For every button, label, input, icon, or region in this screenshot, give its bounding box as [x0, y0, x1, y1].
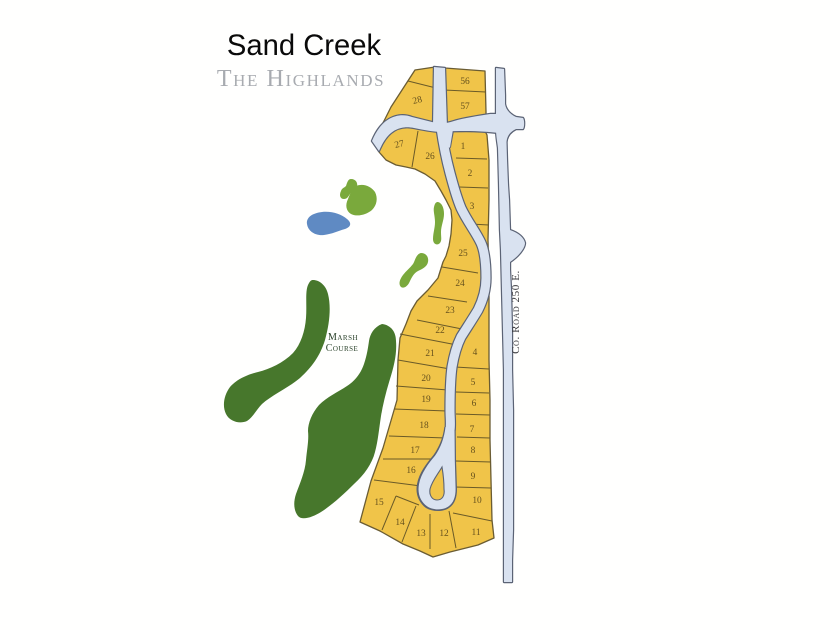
svg-text:23: 23	[445, 306, 455, 316]
svg-text:10: 10	[472, 496, 482, 506]
svg-text:22: 22	[435, 326, 445, 336]
svg-text:21: 21	[425, 349, 435, 359]
svg-text:1: 1	[461, 142, 466, 152]
svg-text:6: 6	[472, 399, 477, 409]
svg-text:25: 25	[458, 249, 468, 259]
svg-text:13: 13	[416, 529, 426, 539]
svg-text:18: 18	[419, 421, 429, 431]
svg-text:Co. Road 250 E.: Co. Road 250 E.	[510, 270, 522, 354]
svg-text:Course: Course	[326, 343, 359, 354]
svg-text:17: 17	[410, 446, 420, 456]
svg-text:14: 14	[395, 518, 405, 528]
svg-text:4: 4	[473, 348, 478, 358]
svg-text:3: 3	[470, 202, 475, 212]
svg-text:11: 11	[471, 528, 480, 538]
svg-text:20: 20	[421, 374, 431, 384]
svg-text:Marsh: Marsh	[328, 332, 358, 343]
svg-text:8: 8	[471, 446, 476, 456]
svg-text:9: 9	[471, 472, 476, 482]
svg-text:5: 5	[471, 378, 476, 388]
svg-text:2: 2	[468, 169, 473, 179]
svg-text:16: 16	[406, 466, 416, 476]
svg-text:7: 7	[470, 425, 475, 435]
svg-text:56: 56	[460, 77, 470, 87]
svg-text:57: 57	[460, 102, 470, 112]
svg-text:Sand Creek: Sand Creek	[227, 30, 382, 62]
svg-text:24: 24	[455, 279, 465, 289]
svg-text:26: 26	[425, 152, 435, 162]
svg-text:15: 15	[374, 498, 384, 508]
svg-text:19: 19	[421, 395, 431, 405]
svg-text:12: 12	[439, 529, 449, 539]
svg-text:The Highlands: The Highlands	[217, 66, 385, 92]
